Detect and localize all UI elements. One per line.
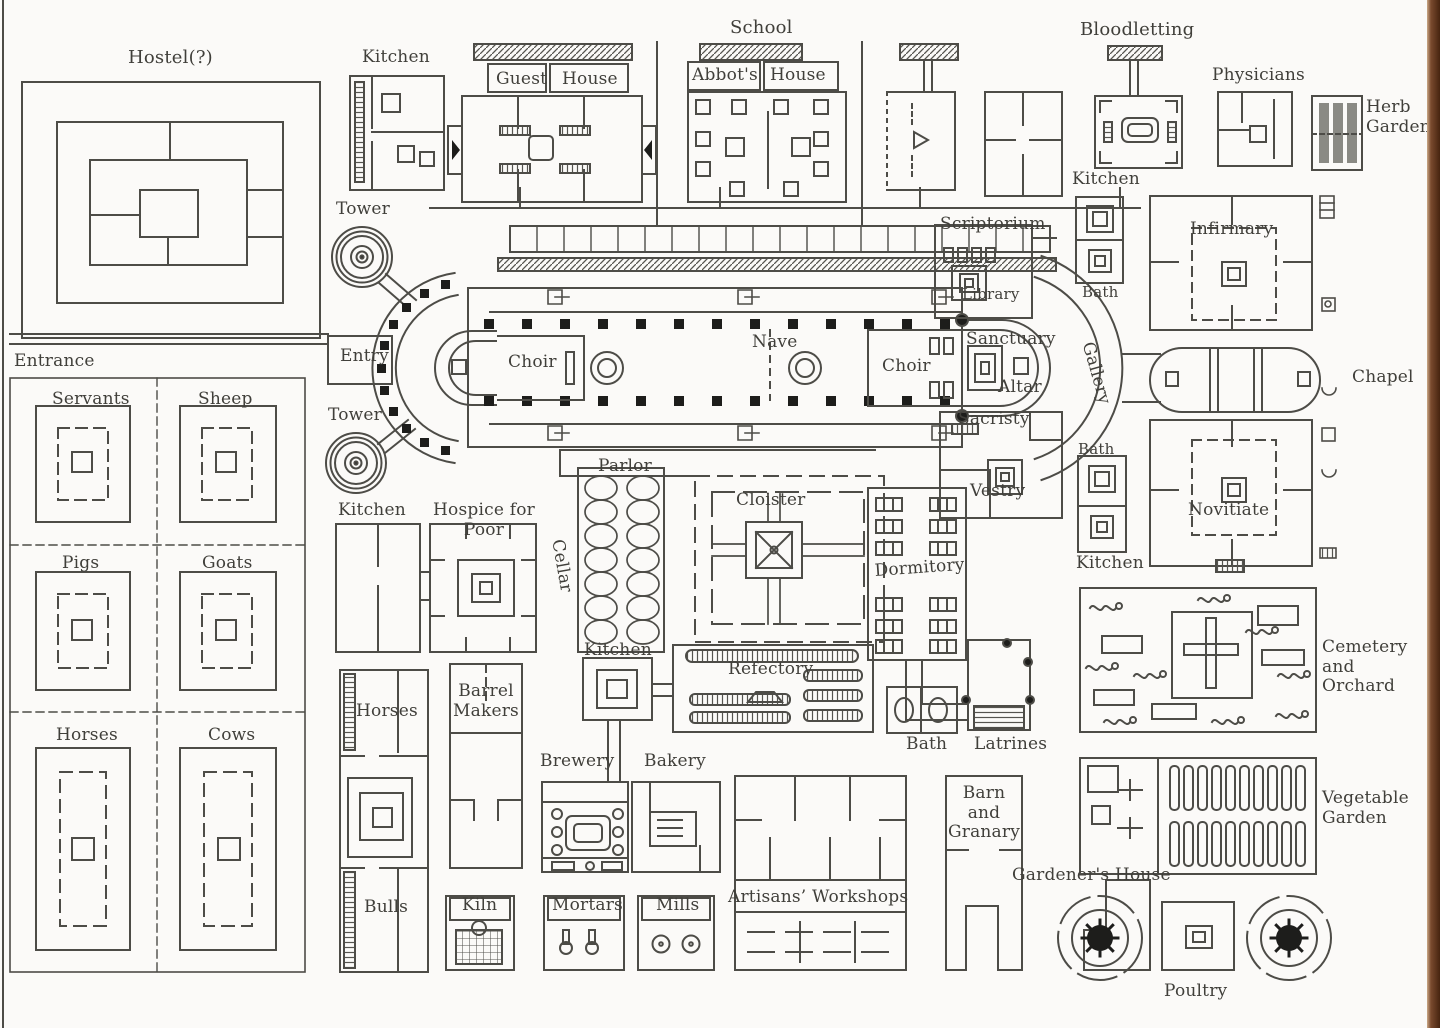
poultry-house-east [1247,896,1331,980]
label-refectory: Refectory [728,660,813,680]
dormitory-building [868,488,968,720]
herb-garden [1312,96,1362,170]
label-brewery: Brewery [540,752,614,772]
guest-house-building [448,44,656,202]
label-parlor: Parlor [598,457,652,477]
label-mortars: Mortars [552,896,623,916]
label-hospice: Hospice for Poor [424,501,544,540]
label-cloister: Cloister [736,491,805,511]
label-artisans: Artisans’ Workshops [728,888,908,908]
right-margin-rooms [1320,196,1336,558]
label-kiln: Kiln [462,896,497,916]
label-scriptorium: Scriptorium [940,215,1046,235]
label-library: Library [962,286,1020,303]
bakery-building [632,782,720,872]
label-sheep: Sheep [198,390,253,410]
label-cows: Cows [208,726,255,746]
label-physicians: Physicians [1212,66,1305,86]
label-school: School [730,18,793,39]
label-herb-garden: Herb Garden [1366,98,1431,137]
label-sanctuary: Sanctuary [966,330,1056,350]
artisans-workshops-building [735,776,906,970]
label-bakery: Bakery [644,752,706,772]
label-abbots: Abbot's [692,66,758,86]
novitiate-building [1150,420,1312,572]
label-sacristy: Sacristy [958,410,1030,430]
label-mills: Mills [656,896,699,916]
physicians-building [1218,92,1292,166]
label-barrel-makers: Barrel Makers [448,682,524,721]
brewery-building [542,782,628,872]
label-vegetable-garden: Vegetable Garden [1322,789,1409,828]
label-horses-pen: Horses [56,726,118,746]
kitchen-hospice-building [336,524,430,652]
label-poultry: Poultry [1164,982,1227,1002]
monastery-plan: Hostel(?) Kitchen Guest House School Abb… [0,0,1440,1028]
label-servants: Servants [52,390,130,410]
label-bulls: Bulls [364,898,408,918]
label-barn: Barn and Granary [946,784,1022,843]
label-altar: Altar [998,378,1042,398]
kitchen-bath-upper-building [1076,197,1123,283]
label-novitiate: Novitiate [1188,501,1269,521]
poultry-house-west [1058,896,1142,980]
bath-south-building [887,687,957,733]
animal-pens [10,378,305,972]
label-entrance: Entrance [14,352,95,372]
cellar-building [578,468,664,652]
label-kitchen-topleft: Kitchen [362,48,430,68]
label-tower-south: Tower [328,406,382,426]
label-kitchen-topright: Kitchen [1072,170,1140,190]
bloodletting-building [1095,46,1182,168]
label-latrines: Latrines [974,735,1047,755]
label-bath-1: Bath [1082,284,1118,301]
label-goats: Goats [202,554,253,574]
label-bloodletting: Bloodletting [1080,20,1194,41]
tower-south [326,420,415,493]
kitchen-topleft-building [350,76,444,190]
label-pigs: Pigs [62,554,99,574]
label-bath-3: Bath [906,735,947,755]
gardeners-house-building [1084,880,1234,970]
label-chapel: Chapel [1352,368,1414,388]
label-tower-north: Tower [336,200,390,220]
label-choir-east: Choir [882,357,931,377]
label-infirmary: Infirmary [1190,220,1273,240]
school-annex-building [985,92,1062,196]
label-kitchen-right: Kitchen [1076,554,1144,574]
label-kitchen-left: Kitchen [338,501,406,521]
label-nave: Nave [752,333,797,353]
label-kitchen-monks: Kitchen [584,641,652,661]
label-abbots-house: House [770,66,826,86]
label-cemetery: Cemetery and Orchard [1322,638,1407,697]
school-building [887,44,958,190]
bath-kitchen-lower-building [1078,456,1126,552]
abbots-house-building [657,42,862,224]
vegetable-garden [1080,758,1316,874]
label-guest-house: House [562,70,618,90]
label-horses-stable: Horses [356,702,418,722]
chapel-building [1150,348,1320,412]
hostel-building [22,82,320,338]
latrines-building [962,639,1034,730]
label-gardeners-house: Gardener's House [1012,866,1171,886]
label-bath-2: Bath [1078,441,1114,458]
label-vestry: Vestry [970,482,1025,502]
page-edge-bar [1427,0,1440,1028]
cemetery-orchard [1080,588,1316,732]
label-choir-west: Choir [508,353,557,373]
label-entry: Entry [340,347,389,367]
label-hostel: Hostel(?) [128,48,213,69]
infirmary-building [1150,196,1312,330]
label-guest: Guest [496,70,547,90]
hospice-building [430,524,536,652]
